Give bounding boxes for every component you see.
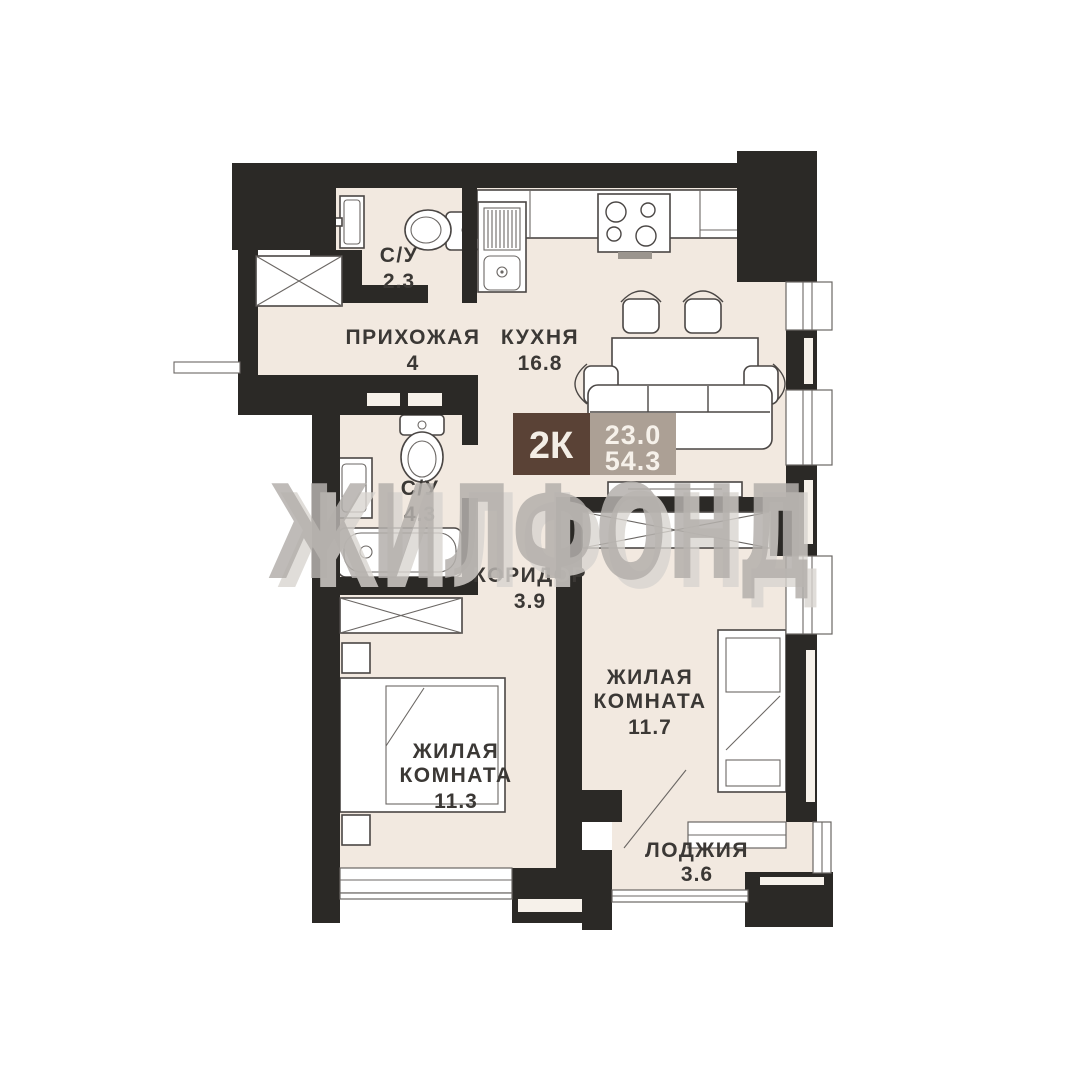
stove-icon <box>598 194 670 252</box>
wall-room2-bottom <box>556 790 622 822</box>
bed-pillow <box>726 638 780 692</box>
area-bathroom-small: 2.3 <box>383 270 415 293</box>
nightstand <box>342 815 370 845</box>
chair-seat <box>685 299 721 333</box>
toilet-bowl-inner <box>411 217 441 243</box>
living-room-2-furniture <box>718 630 786 792</box>
wall-vent-slot <box>760 877 824 885</box>
area-living-room-1: 11.3 <box>434 790 478 813</box>
entrance-door-leaf <box>174 362 240 373</box>
window-kitchen-2 <box>786 390 832 465</box>
sink-drain-dot <box>500 270 503 273</box>
area-hallway: 4 <box>407 352 420 375</box>
floorplan-page: С/У 2.3 ПРИХОЖАЯ 4 КУХНЯ 16.8 С/У 4.3 КО… <box>0 0 1080 1080</box>
watermark: ЖИЛФОНД ЖИЛФОНД <box>268 457 822 618</box>
nightstand <box>342 643 370 673</box>
label-living-room-1-line2: КОМНАТА <box>399 764 512 787</box>
wall-bath-small-left <box>310 163 336 256</box>
wall-niche-left <box>238 250 258 375</box>
watermark-text: ЖИЛФОНД <box>268 457 813 609</box>
toilet-button <box>418 421 426 429</box>
label-bathroom-small: С/У <box>380 244 419 267</box>
area-loggia: 3.6 <box>681 863 713 886</box>
label-loggia: ЛОДЖИЯ <box>645 839 749 862</box>
bed-footboard <box>726 760 780 786</box>
floorplan-drawing: С/У 2.3 ПРИХОЖАЯ 4 КУХНЯ 16.8 С/У 4.3 КО… <box>0 0 1080 1080</box>
kitchen-drainboard <box>484 208 520 250</box>
label-living-room-1-line1: ЖИЛАЯ <box>412 740 500 763</box>
wall-bedroom-window-block <box>512 868 592 923</box>
wardrobe-entry <box>256 256 342 306</box>
wall-vent-slot <box>408 393 442 406</box>
label-living-room-2-line2: КОМНАТА <box>593 690 706 713</box>
label-hallway: ПРИХОЖАЯ <box>346 326 481 349</box>
area-living-room-2: 11.7 <box>628 716 672 739</box>
chair-seat <box>623 299 659 333</box>
wall-vent-slot <box>806 650 815 802</box>
wall-vent-slot <box>518 899 582 912</box>
window-kitchen-1 <box>786 282 832 330</box>
wall-bath-small-kitchen <box>462 163 477 303</box>
wall-right-upper <box>786 188 817 282</box>
label-kitchen: КУХНЯ <box>501 326 579 349</box>
wall-top-left-block <box>232 163 310 250</box>
stove-handle <box>618 252 652 259</box>
area-kitchen: 16.8 <box>518 352 563 375</box>
washbasin-bowl <box>344 200 360 244</box>
wall-vent-slot <box>367 393 400 406</box>
wall-bath-large-right-upper <box>462 385 478 445</box>
label-living-room-2-line1: ЖИЛАЯ <box>606 666 694 689</box>
wall-vent-slot <box>804 338 813 384</box>
window-room1-sill <box>340 893 512 899</box>
